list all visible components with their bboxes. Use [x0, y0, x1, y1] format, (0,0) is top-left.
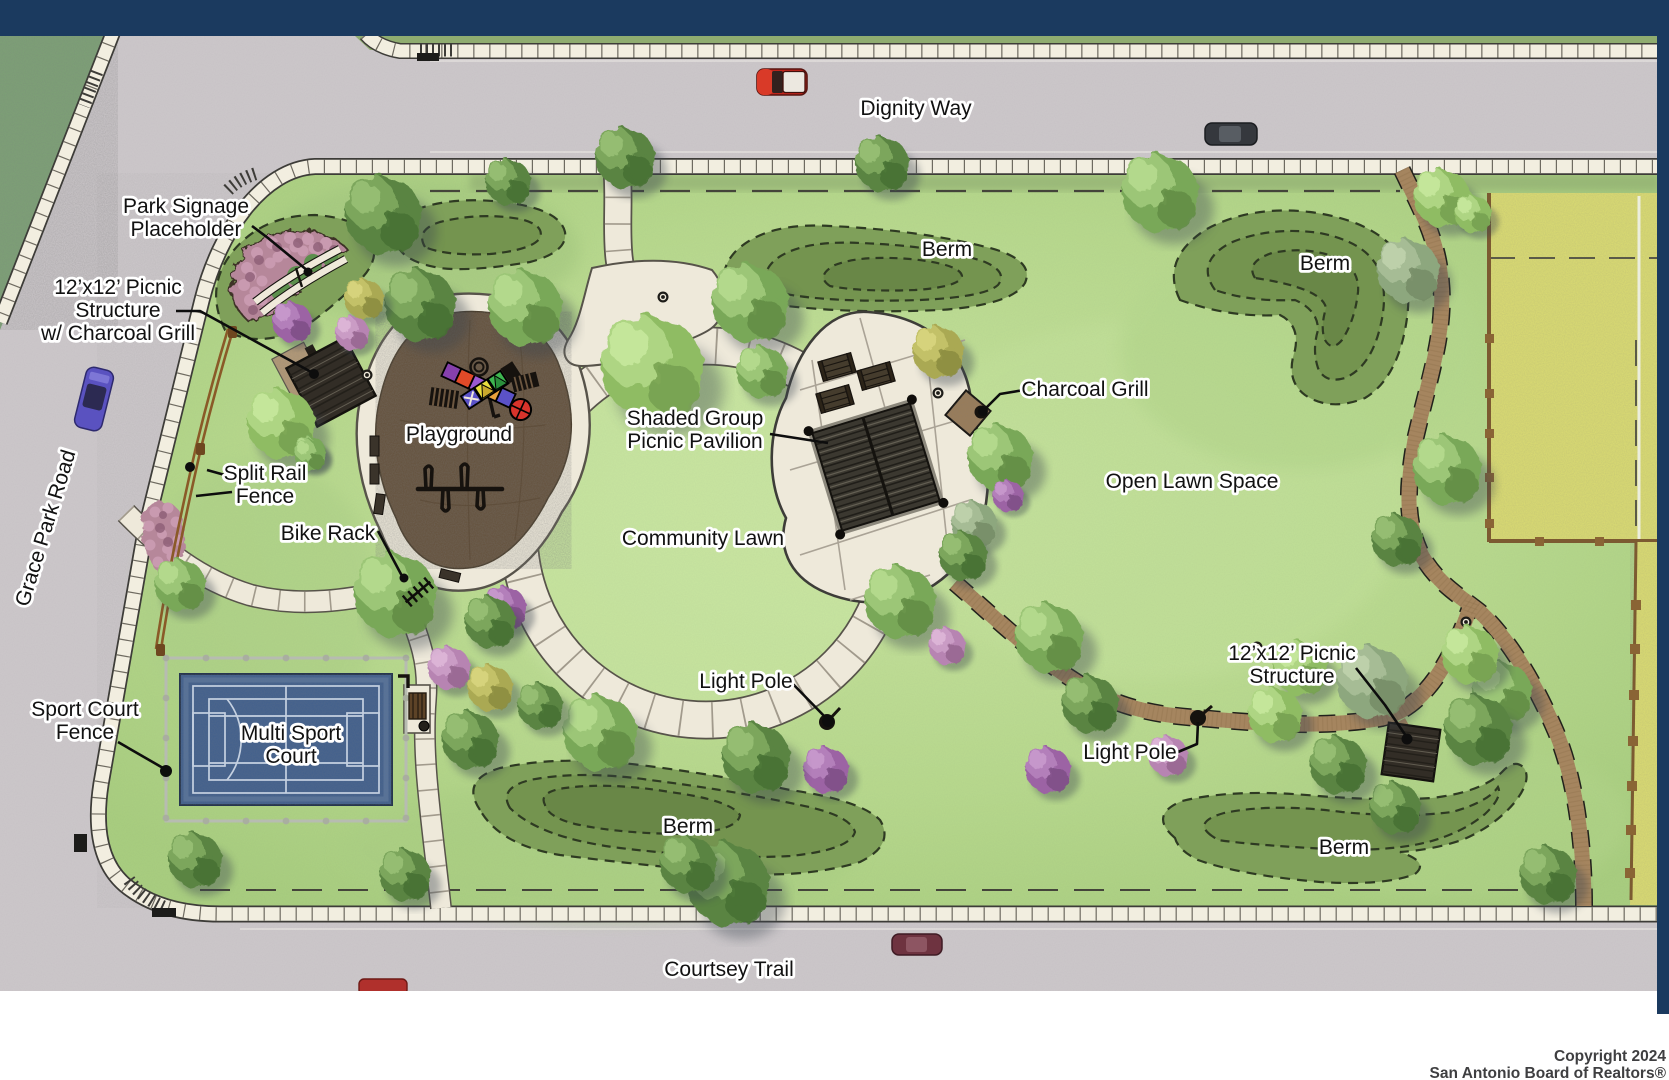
svg-text:San Antonio Board of Realtors®: San Antonio Board of Realtors®: [1430, 1065, 1667, 1080]
svg-text:Fence: Fence: [56, 721, 114, 744]
svg-text:Park Signage: Park Signage: [123, 195, 249, 218]
svg-text:Light Pole: Light Pole: [1083, 741, 1176, 764]
svg-text:Multi Sport: Multi Sport: [241, 722, 342, 745]
svg-text:w/ Charcoal Grill: w/ Charcoal Grill: [40, 322, 195, 345]
svg-text:12’x12’ Picnic: 12’x12’ Picnic: [54, 276, 182, 299]
svg-text:Shaded Group: Shaded Group: [627, 407, 764, 430]
svg-text:Playground: Playground: [406, 423, 512, 446]
svg-text:Berm: Berm: [922, 238, 972, 261]
svg-text:Berm: Berm: [663, 815, 713, 838]
svg-text:Courtsey Trail: Courtsey Trail: [664, 958, 794, 981]
svg-text:Structure: Structure: [75, 299, 160, 322]
svg-text:Dignity Way: Dignity Way: [860, 97, 972, 120]
svg-text:Split Rail: Split Rail: [224, 462, 307, 485]
svg-text:12’x12’ Picnic: 12’x12’ Picnic: [1228, 642, 1356, 665]
svg-text:Copyright 2024: Copyright 2024: [1554, 1048, 1666, 1065]
svg-text:Structure: Structure: [1249, 665, 1334, 688]
svg-text:Placeholder: Placeholder: [131, 218, 242, 241]
svg-text:Sport Court: Sport Court: [31, 698, 139, 721]
svg-text:Picnic Pavilion: Picnic Pavilion: [627, 430, 762, 453]
svg-text:Open Lawn Space: Open Lawn Space: [1106, 470, 1279, 493]
svg-text:Fence: Fence: [236, 485, 294, 508]
svg-text:Berm: Berm: [1300, 252, 1350, 275]
svg-text:Charcoal Grill: Charcoal Grill: [1021, 378, 1148, 401]
svg-text:Light Pole: Light Pole: [699, 670, 792, 693]
svg-text:Court: Court: [265, 745, 317, 768]
svg-text:Bike Rack: Bike Rack: [281, 522, 376, 545]
svg-text:Community Lawn: Community Lawn: [622, 527, 784, 550]
svg-text:Berm: Berm: [1319, 836, 1369, 859]
